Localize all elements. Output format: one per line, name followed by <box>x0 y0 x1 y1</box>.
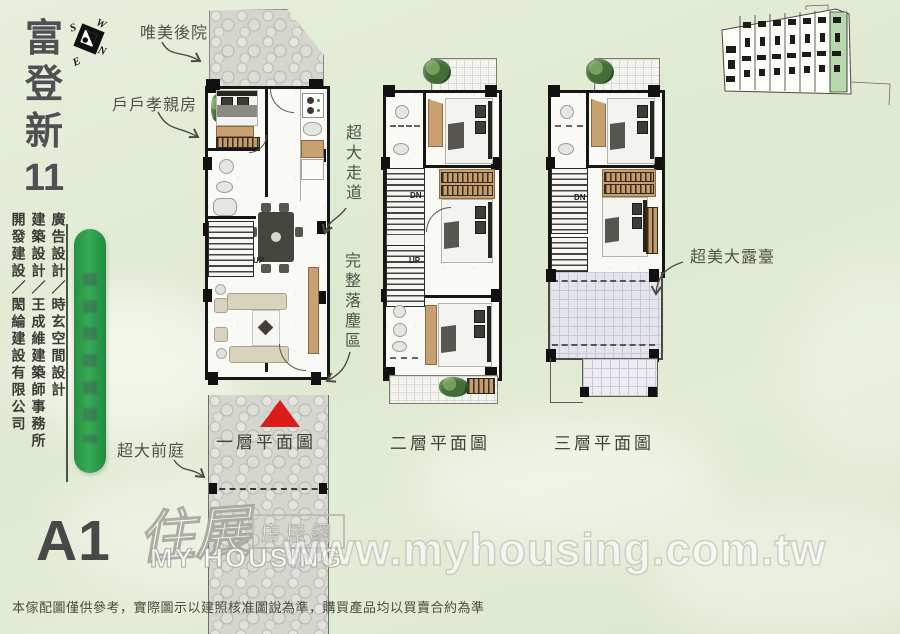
sideboard <box>308 267 319 354</box>
floor-plan-2: DN UP 二層平面圖 <box>383 57 498 407</box>
bed <box>438 303 492 367</box>
stairs <box>386 168 425 236</box>
bed <box>607 98 655 164</box>
side-table <box>216 348 227 359</box>
wall-column <box>648 387 657 397</box>
interior-wall <box>423 93 426 165</box>
plant-icon <box>423 59 451 84</box>
bed <box>445 98 493 164</box>
wardrobe <box>439 169 495 199</box>
closet <box>428 99 443 147</box>
interior-wall <box>423 165 493 168</box>
compass-icon: S W N E <box>58 12 118 72</box>
bed <box>602 197 648 257</box>
desk <box>425 305 437 365</box>
bathtub <box>213 198 237 216</box>
green-banner <box>74 229 106 473</box>
wall-column <box>317 221 326 234</box>
stairs <box>386 245 425 307</box>
wardrobe <box>646 207 658 254</box>
stairs-up <box>208 221 254 277</box>
divider-line <box>66 224 68 482</box>
cabinet <box>301 140 324 158</box>
plant-icon <box>439 377 469 397</box>
annotation-foyer: 完整落塵區 <box>338 252 362 352</box>
floor-plan-3: DN 三層平面圖 <box>548 57 662 407</box>
shower-dashed-line <box>390 125 420 127</box>
stair-label-up: UP <box>409 256 420 265</box>
sink <box>216 181 233 193</box>
annotation-parents-room: 戶戶孝親房 <box>112 91 197 115</box>
wall-column <box>548 85 560 97</box>
wall-column <box>203 157 212 170</box>
wall-column <box>208 372 218 385</box>
armchair <box>214 327 228 342</box>
shower-dashed-line <box>390 357 418 359</box>
annotation-walkway: 超大走道 <box>339 124 363 204</box>
interior-wall <box>423 295 493 298</box>
watermark-url: www.myhousing.com.tw <box>283 524 826 576</box>
closet <box>591 99 606 147</box>
north-arrow-glyph <box>80 30 97 47</box>
chair <box>261 264 271 273</box>
dining-table <box>258 212 294 262</box>
annotation-backyard: 唯美後院 <box>140 19 208 43</box>
washer <box>393 305 406 318</box>
plant-icon <box>586 59 614 84</box>
credit-architect: 建築設計／王成維建築師事務所 <box>28 212 46 462</box>
floor-2-label: 二層平面圖 <box>385 429 495 454</box>
annotation-terrace: 超美大露臺 <box>690 243 775 267</box>
credit-ad-design: 廣告設計／時玄空間設計 <box>48 212 66 417</box>
chair <box>279 264 289 273</box>
toilet <box>393 323 407 337</box>
side-yard <box>550 358 583 403</box>
credit-developer: 開發建設／閎綸建設有限公司 <box>8 212 26 452</box>
floor-3-label: 三層平面圖 <box>548 429 660 454</box>
wardrobe <box>602 169 656 197</box>
terrace <box>548 272 663 360</box>
wall-column <box>203 289 212 302</box>
stair-label-dn: DN <box>574 193 586 202</box>
wall-column <box>383 85 395 97</box>
wall-column <box>649 269 659 282</box>
floor-1-label: 一層平面圖 <box>213 428 319 453</box>
unit-label: A1 <box>36 508 111 574</box>
stair-label-dn: DN <box>410 191 422 200</box>
fridge <box>301 159 324 180</box>
sink <box>393 143 409 155</box>
title-char: 11 <box>22 155 66 201</box>
sink <box>558 143 574 155</box>
entrance-arrow <box>260 400 300 427</box>
coffee-table <box>252 310 280 346</box>
wall-column <box>311 372 321 385</box>
sofa <box>227 293 287 310</box>
interior-wall <box>265 89 268 197</box>
chair <box>295 227 303 237</box>
bed <box>216 90 258 126</box>
interior-wall <box>586 93 589 165</box>
sink <box>392 341 407 352</box>
planter <box>467 378 495 394</box>
wall-column <box>319 483 327 494</box>
toilet <box>219 159 234 174</box>
side-table <box>215 284 226 295</box>
toilet <box>560 105 574 119</box>
terrace-extension <box>582 358 658 397</box>
title-char: 新 <box>22 109 66 155</box>
stove <box>302 93 324 118</box>
floor-plan-poster: 富 登 新 11 S W N E 開發建設／閎綸建設有限公司 建築設計／王成維建… <box>0 0 900 634</box>
cloud-decoration <box>790 260 900 480</box>
chair <box>261 203 271 212</box>
wall-column <box>648 85 660 97</box>
compass-letter-e: E <box>71 55 83 69</box>
wall-column <box>580 387 589 397</box>
interior-wall <box>586 165 656 168</box>
kitchen-sink <box>303 122 322 136</box>
backyard <box>209 9 324 89</box>
toilet <box>395 105 409 119</box>
wall-column <box>485 85 497 97</box>
wall-column <box>546 269 556 282</box>
disclaimer-text: 本傢配圖僅供參考，實際圖示以建照核准圖說為準，購買產品均以買賣合約為準 <box>12 597 485 616</box>
chair <box>279 203 289 212</box>
stair-label-up: UP <box>253 256 264 265</box>
annotation-front-yard: 超大前庭 <box>117 437 185 461</box>
armchair <box>214 298 228 313</box>
interior-wall <box>208 216 256 219</box>
stairs <box>551 237 588 272</box>
shower-dashed-line <box>555 125 583 127</box>
site-key-plan <box>710 4 896 106</box>
compass-letter-s: S <box>68 21 78 34</box>
